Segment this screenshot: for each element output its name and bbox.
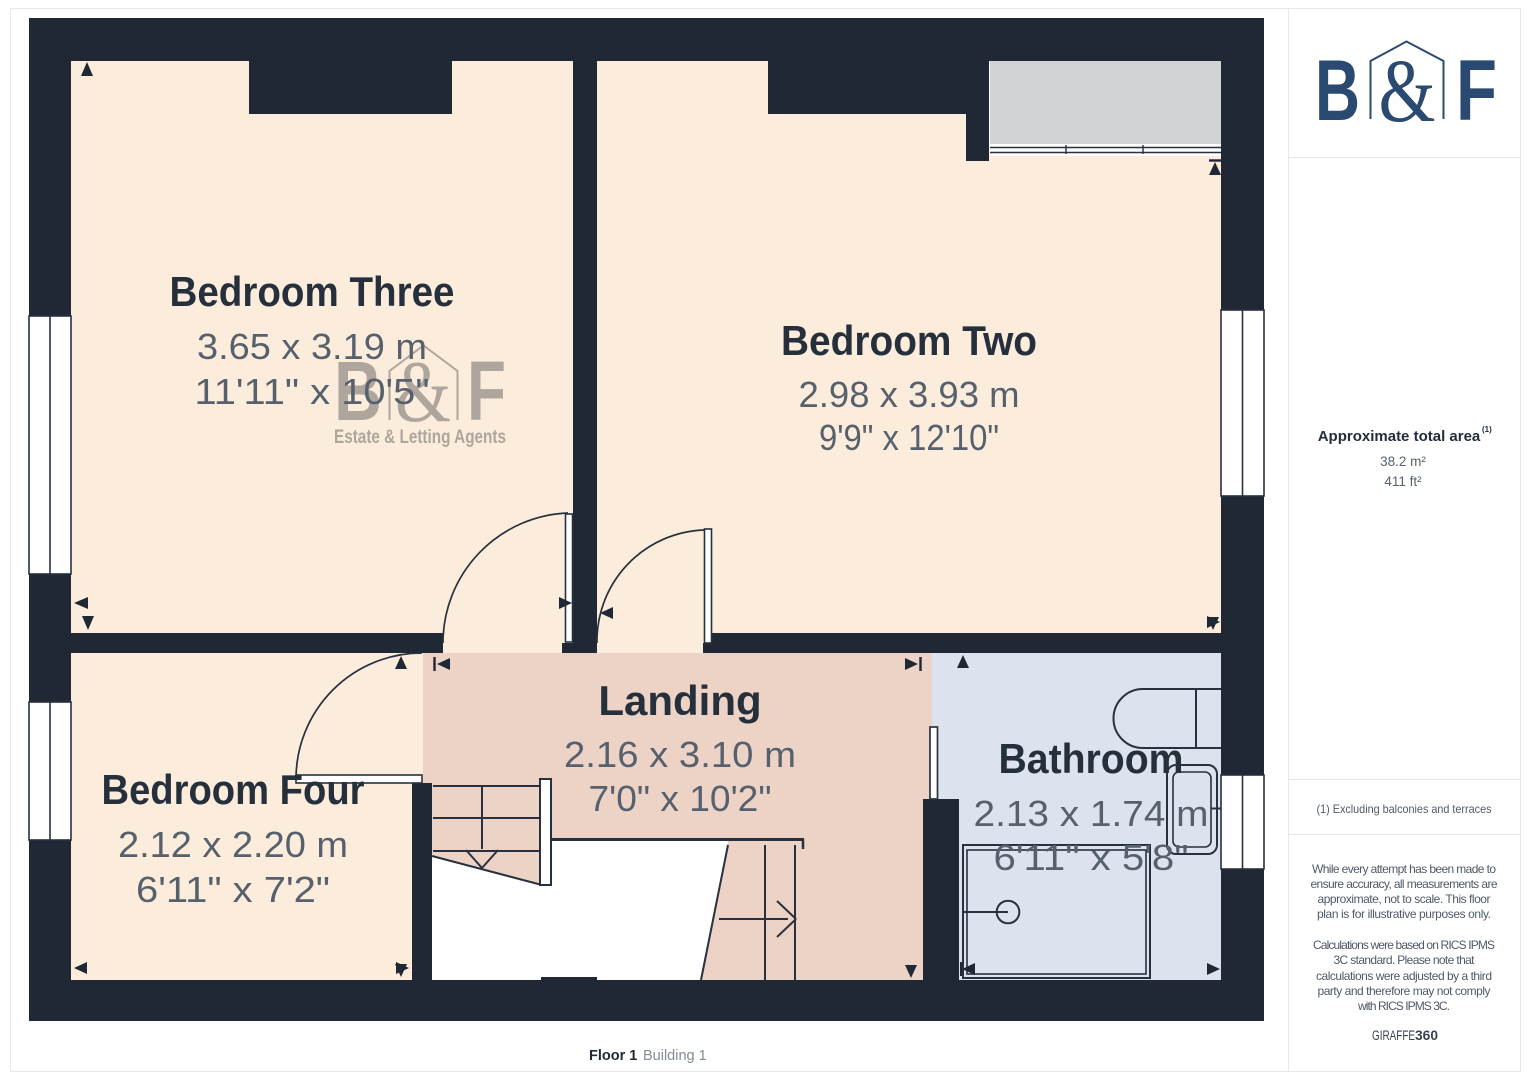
svg-text:360: 360: [1415, 1028, 1438, 1043]
svg-text:Calculations were based on RIC: Calculations were based on RICS IPMS: [1313, 938, 1495, 952]
svg-text:6'11" x 7'2": 6'11" x 7'2": [136, 869, 330, 910]
svg-text:3C standard. Please note that: 3C standard. Please note that: [1334, 953, 1476, 967]
svg-text:2.12 x 2.20 m: 2.12 x 2.20 m: [118, 824, 348, 865]
svg-text:B: B: [1315, 43, 1360, 139]
svg-text:3.65 x 3.19 m: 3.65 x 3.19 m: [197, 326, 427, 367]
svg-text:F: F: [1456, 43, 1497, 139]
svg-text:Landing: Landing: [598, 677, 761, 724]
svg-text:ensure accuracy, all measureme: ensure accuracy, all measurements are: [1311, 877, 1498, 891]
svg-text:While every attempt has been m: While every attempt has been made to: [1312, 862, 1496, 876]
svg-text:411 ft²: 411 ft²: [1384, 474, 1422, 489]
svg-text:(1): (1): [1482, 425, 1492, 434]
svg-text:6'11" x 5'8": 6'11" x 5'8": [994, 837, 1189, 878]
svg-text:Bedroom Three: Bedroom Three: [170, 268, 455, 315]
svg-text:Building 1: Building 1: [643, 1048, 707, 1064]
svg-text:38.2 m²: 38.2 m²: [1380, 454, 1426, 469]
svg-text:Bedroom Four: Bedroom Four: [102, 766, 365, 813]
svg-text:2.98 x 3.93 m: 2.98 x 3.93 m: [799, 374, 1020, 415]
svg-text:Floor 1: Floor 1: [589, 1048, 637, 1064]
svg-text:Approximate total area: Approximate total area: [1318, 428, 1481, 445]
svg-text:F: F: [467, 344, 506, 438]
svg-text:GIRAFFE: GIRAFFE: [1372, 1028, 1415, 1043]
svg-text:2.13 x 1.74 m: 2.13 x 1.74 m: [974, 793, 1209, 834]
svg-text:approximate, not to scale. Thi: approximate, not to scale. This floor: [1318, 892, 1491, 906]
svg-text:Bedroom Two: Bedroom Two: [781, 317, 1037, 364]
svg-text:&: &: [1379, 42, 1436, 141]
svg-text:Bathroom: Bathroom: [999, 735, 1184, 782]
svg-text:party and therefore may not co: party and therefore may not comply: [1318, 984, 1491, 998]
svg-text:2.16 x 3.10 m: 2.16 x 3.10 m: [564, 734, 796, 775]
svg-text:plan is for illustrative purpo: plan is for illustrative purposes only.: [1317, 907, 1491, 921]
svg-text:(1) Excluding balconies and te: (1) Excluding balconies and terraces: [1317, 802, 1492, 816]
svg-text:11'11" x 10'5": 11'11" x 10'5": [195, 371, 430, 412]
svg-text:calculations were adjusted by: calculations were adjusted by a third: [1316, 969, 1492, 983]
svg-text:with RICS IPMS 3C.: with RICS IPMS 3C.: [1357, 999, 1450, 1013]
svg-text:7'0" x 10'2": 7'0" x 10'2": [589, 778, 772, 819]
svg-text:9'9" x 12'10": 9'9" x 12'10": [819, 417, 999, 458]
svg-text:Estate & Letting Agents: Estate & Letting Agents: [334, 427, 506, 448]
